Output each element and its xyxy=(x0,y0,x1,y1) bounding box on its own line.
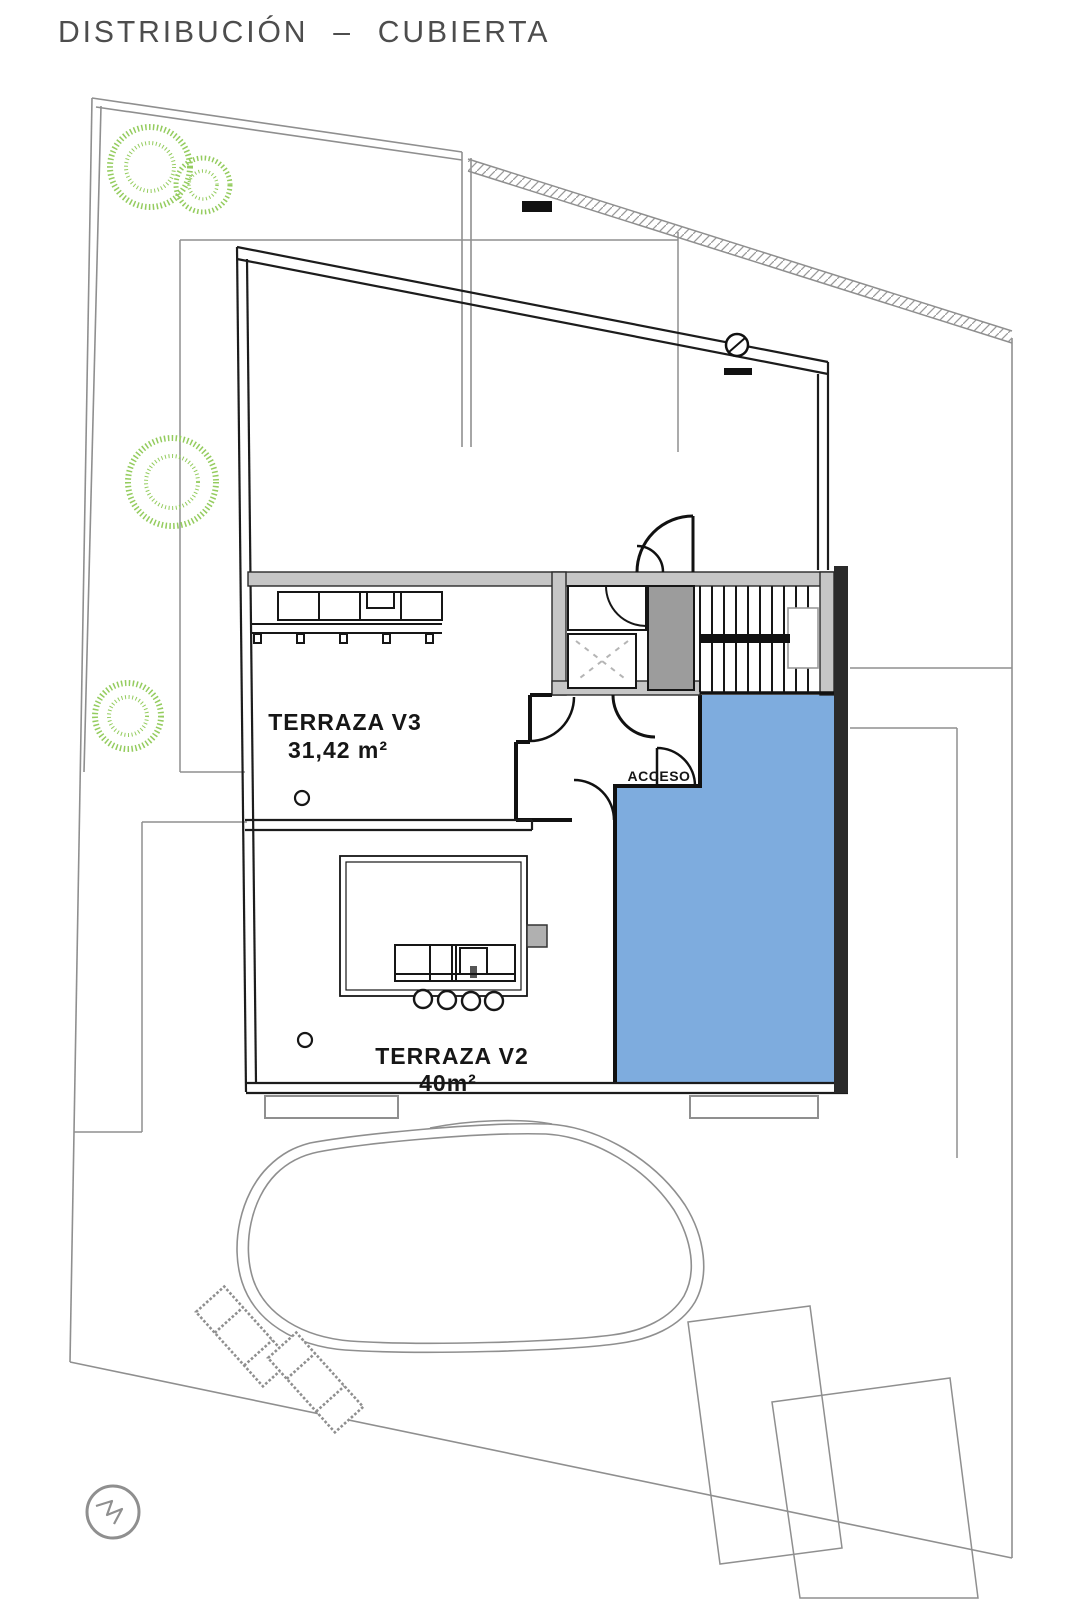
site-boundary xyxy=(70,98,1012,1558)
stair-core xyxy=(568,516,694,737)
room-label: TERRAZA V2 xyxy=(375,1043,529,1069)
room-label: TERRAZA V3 xyxy=(268,709,422,735)
door-arc xyxy=(613,695,655,737)
terraza-v3: TERRAZA V3 31,42 m² xyxy=(245,709,532,830)
tree-icon xyxy=(95,683,161,749)
right-side-wall xyxy=(834,566,848,1093)
door-arc xyxy=(637,516,693,572)
hatched-boundary xyxy=(468,159,1012,343)
pool xyxy=(237,1121,704,1353)
highlighted-roof-area xyxy=(615,695,834,1083)
drain-icon xyxy=(295,791,309,805)
bar-stools xyxy=(414,990,503,1010)
floor-plan-drawing: ACCESO TERRAZA V3 31,42 m² xyxy=(0,0,1084,1600)
staircase xyxy=(700,586,818,692)
floor-plan-sheet: DISTRIBUCIÓN – CUBIERTA xyxy=(0,0,1084,1600)
kitchen-counter xyxy=(252,592,442,643)
room-area: 31,42 m² xyxy=(288,737,388,763)
sun-lounger-icon xyxy=(268,1333,363,1433)
sun-lounger-icon xyxy=(196,1287,291,1387)
roof-vent-mark xyxy=(522,201,552,212)
bar-counter xyxy=(395,945,515,981)
door-arc xyxy=(574,780,614,820)
sink-icon xyxy=(367,592,394,608)
door-arc xyxy=(530,697,574,741)
tree-icon xyxy=(128,438,216,526)
acceso-label: ACCESO xyxy=(628,768,691,784)
terraza-v2: TERRAZA V2 40m² xyxy=(298,856,547,1096)
handrail xyxy=(700,634,790,643)
lift-shaft xyxy=(648,586,694,690)
paving-steps xyxy=(688,1306,978,1598)
drain-icon xyxy=(298,1033,312,1047)
tree-icon xyxy=(110,127,230,212)
north-arrow-icon xyxy=(87,1486,139,1538)
stair-landing xyxy=(788,608,818,668)
room-area: 40m² xyxy=(419,1070,477,1096)
facade-footings xyxy=(265,1096,818,1118)
page-title: DISTRIBUCIÓN – CUBIERTA xyxy=(58,14,550,50)
wall-stub xyxy=(527,925,547,947)
